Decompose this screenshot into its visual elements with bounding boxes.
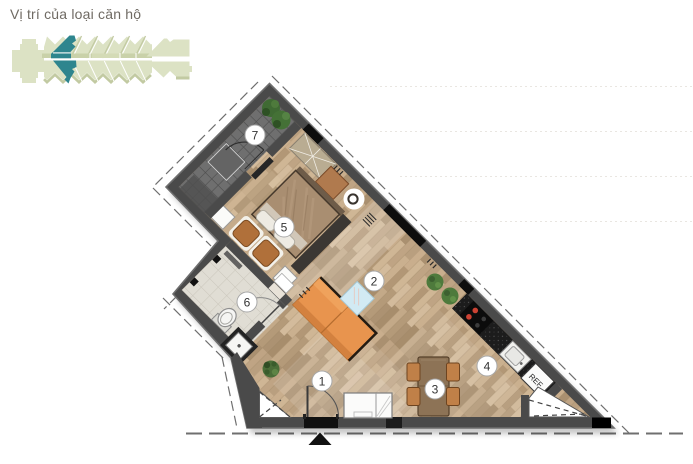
svg-text:3: 3 (432, 383, 439, 397)
svg-text:7: 7 (252, 129, 259, 143)
svg-text:2: 2 (371, 275, 378, 289)
svg-text:6: 6 (244, 296, 251, 310)
svg-text:4: 4 (484, 360, 491, 374)
svg-text:1: 1 (319, 375, 326, 389)
svg-text:5: 5 (281, 221, 288, 235)
